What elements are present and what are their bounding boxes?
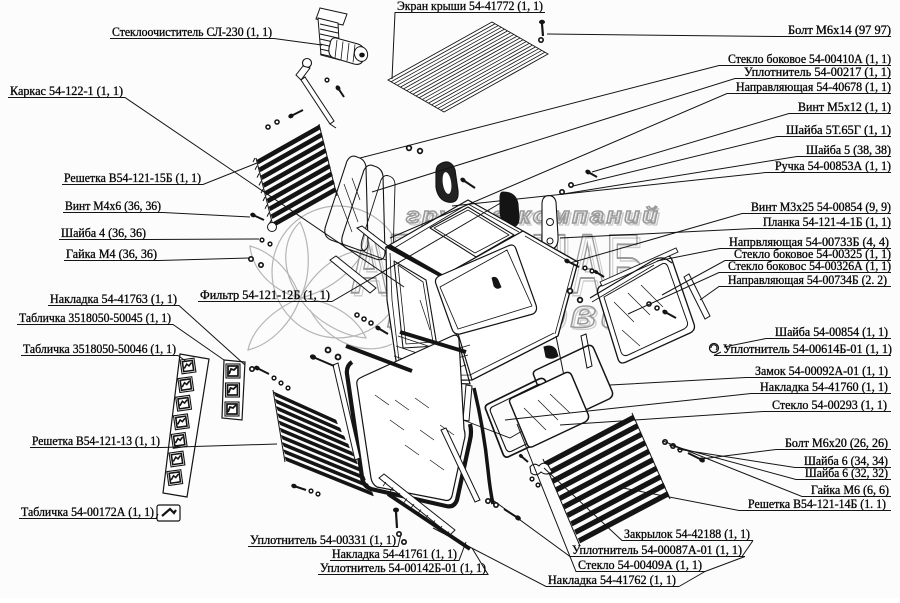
- svg-text:Фильтр 54-121-12Б (1, 1): Фильтр 54-121-12Б (1, 1): [200, 288, 330, 302]
- svg-text:Накладка 54-41761 (1, 1): Накладка 54-41761 (1, 1): [332, 547, 457, 561]
- svg-text:Табличка 3518050-50046 (1, 1): Табличка 3518050-50046 (1, 1): [23, 342, 176, 356]
- svg-text:Шайба 4 (36, 36): Шайба 4 (36, 36): [61, 226, 146, 240]
- svg-text:Винт М4х6 (36, 36): Винт М4х6 (36, 36): [65, 199, 161, 213]
- svg-text:Направляющая 54-00734Б (2. 2): Направляющая 54-00734Б (2. 2): [728, 273, 887, 287]
- svg-text:Решетка В54-121-14Б (1. 1): Решетка В54-121-14Б (1. 1): [748, 497, 886, 511]
- svg-text:Стекло 54-00409А (1, 1): Стекло 54-00409А (1, 1): [578, 558, 702, 572]
- svg-text:Накладка 54-41760 (1, 1): Накладка 54-41760 (1, 1): [760, 380, 888, 394]
- svg-text:Замок 54-00092А-01 (1, 1): Замок 54-00092А-01 (1, 1): [755, 364, 888, 378]
- svg-text:Направляющая 54-40678 (1, 1): Направляющая 54-40678 (1, 1): [736, 80, 891, 94]
- svg-text:Стеклоочиститель СЛ-230 (1, 1): Стеклоочиститель СЛ-230 (1, 1): [112, 25, 272, 39]
- svg-text:Решетка В54-121-15Б (1, 1): Решетка В54-121-15Б (1, 1): [64, 171, 201, 185]
- svg-text:Гайка М6 (6, 6): Гайка М6 (6, 6): [811, 483, 889, 497]
- svg-text:Экран крыши 54-41772 (1, 1): Экран крыши 54-41772 (1, 1): [397, 0, 543, 13]
- svg-text:Накладка 54-41763 (1, 1): Накладка 54-41763 (1, 1): [50, 292, 177, 306]
- svg-text:Планка 54-121-4-1Б (1, 1): Планка 54-121-4-1Б (1, 1): [763, 215, 891, 229]
- svg-text:Ручка 54-00853А (1, 1): Ручка 54-00853А (1, 1): [775, 159, 891, 173]
- svg-text:Шайба 5 (38, 38): Шайба 5 (38, 38): [806, 143, 891, 157]
- svg-text:Уплотнитель 54-00217 (1, 1): Уплотнитель 54-00217 (1, 1): [744, 65, 891, 79]
- svg-text:Уплотнитель 54-00614Б-01 (1, 1: Уплотнитель 54-00614Б-01 (1, 1): [723, 342, 892, 356]
- svg-text:Накладка 54-41762 (1, 1): Накладка 54-41762 (1, 1): [548, 573, 676, 587]
- svg-text:Винт М3х25 54-00854 (9, 9): Винт М3х25 54-00854 (9, 9): [751, 200, 891, 214]
- svg-text:Болт М6х20 (26, 26): Болт М6х20 (26, 26): [785, 436, 888, 450]
- svg-text:Гайка М4 (36, 36): Гайка М4 (36, 36): [66, 247, 157, 261]
- svg-text:Шайба 6 (32, 32): Шайба 6 (32, 32): [805, 466, 888, 480]
- svg-text:Табличка 54-00172А (1, 1): Табличка 54-00172А (1, 1): [21, 505, 154, 519]
- svg-text:Винт М5х12 (1, 1): Винт М5х12 (1, 1): [798, 100, 891, 114]
- svg-text:Уплотнитель 54-00087А-01 (1, 1: Уплотнитель 54-00087А-01 (1, 1): [572, 543, 742, 557]
- svg-text:Шайба 54-00854 (1, 1): Шайба 54-00854 (1, 1): [775, 325, 888, 339]
- svg-text:Табличка 3518050-50045 (1, 1): Табличка 3518050-50045 (1, 1): [19, 311, 171, 325]
- svg-text:Закрылок 54-42188 (1, 1): Закрылок 54-42188 (1, 1): [624, 527, 750, 541]
- svg-text:Стекло боковос 54-00326А (1, 1: Стекло боковос 54-00326А (1, 1): [728, 259, 891, 273]
- svg-text:Уплотнитель 54-00142Б-01 (1, 1: Уплотнитель 54-00142Б-01 (1, 1): [320, 561, 486, 575]
- svg-text:Уплотнитель 54-00331 (1, 1): Уплотнитель 54-00331 (1, 1): [250, 533, 396, 547]
- svg-text:Болт М6х14 (97 97): Болт М6х14 (97 97): [788, 23, 891, 37]
- svg-text:Шайба 5Т.65Г (1, 1): Шайба 5Т.65Г (1, 1): [786, 123, 891, 137]
- svg-text:Стекло 54-00293 (1, 1): Стекло 54-00293 (1, 1): [772, 398, 887, 412]
- svg-text:Стекло боковое 54-00410А (1, 1: Стекло боковое 54-00410А (1, 1): [728, 52, 891, 66]
- svg-text:Каркас 54-122-1 (1, 1): Каркас 54-122-1 (1, 1): [10, 84, 123, 98]
- svg-text:Решетка В54-121-13 (1, 1): Решетка В54-121-13 (1, 1): [32, 434, 160, 448]
